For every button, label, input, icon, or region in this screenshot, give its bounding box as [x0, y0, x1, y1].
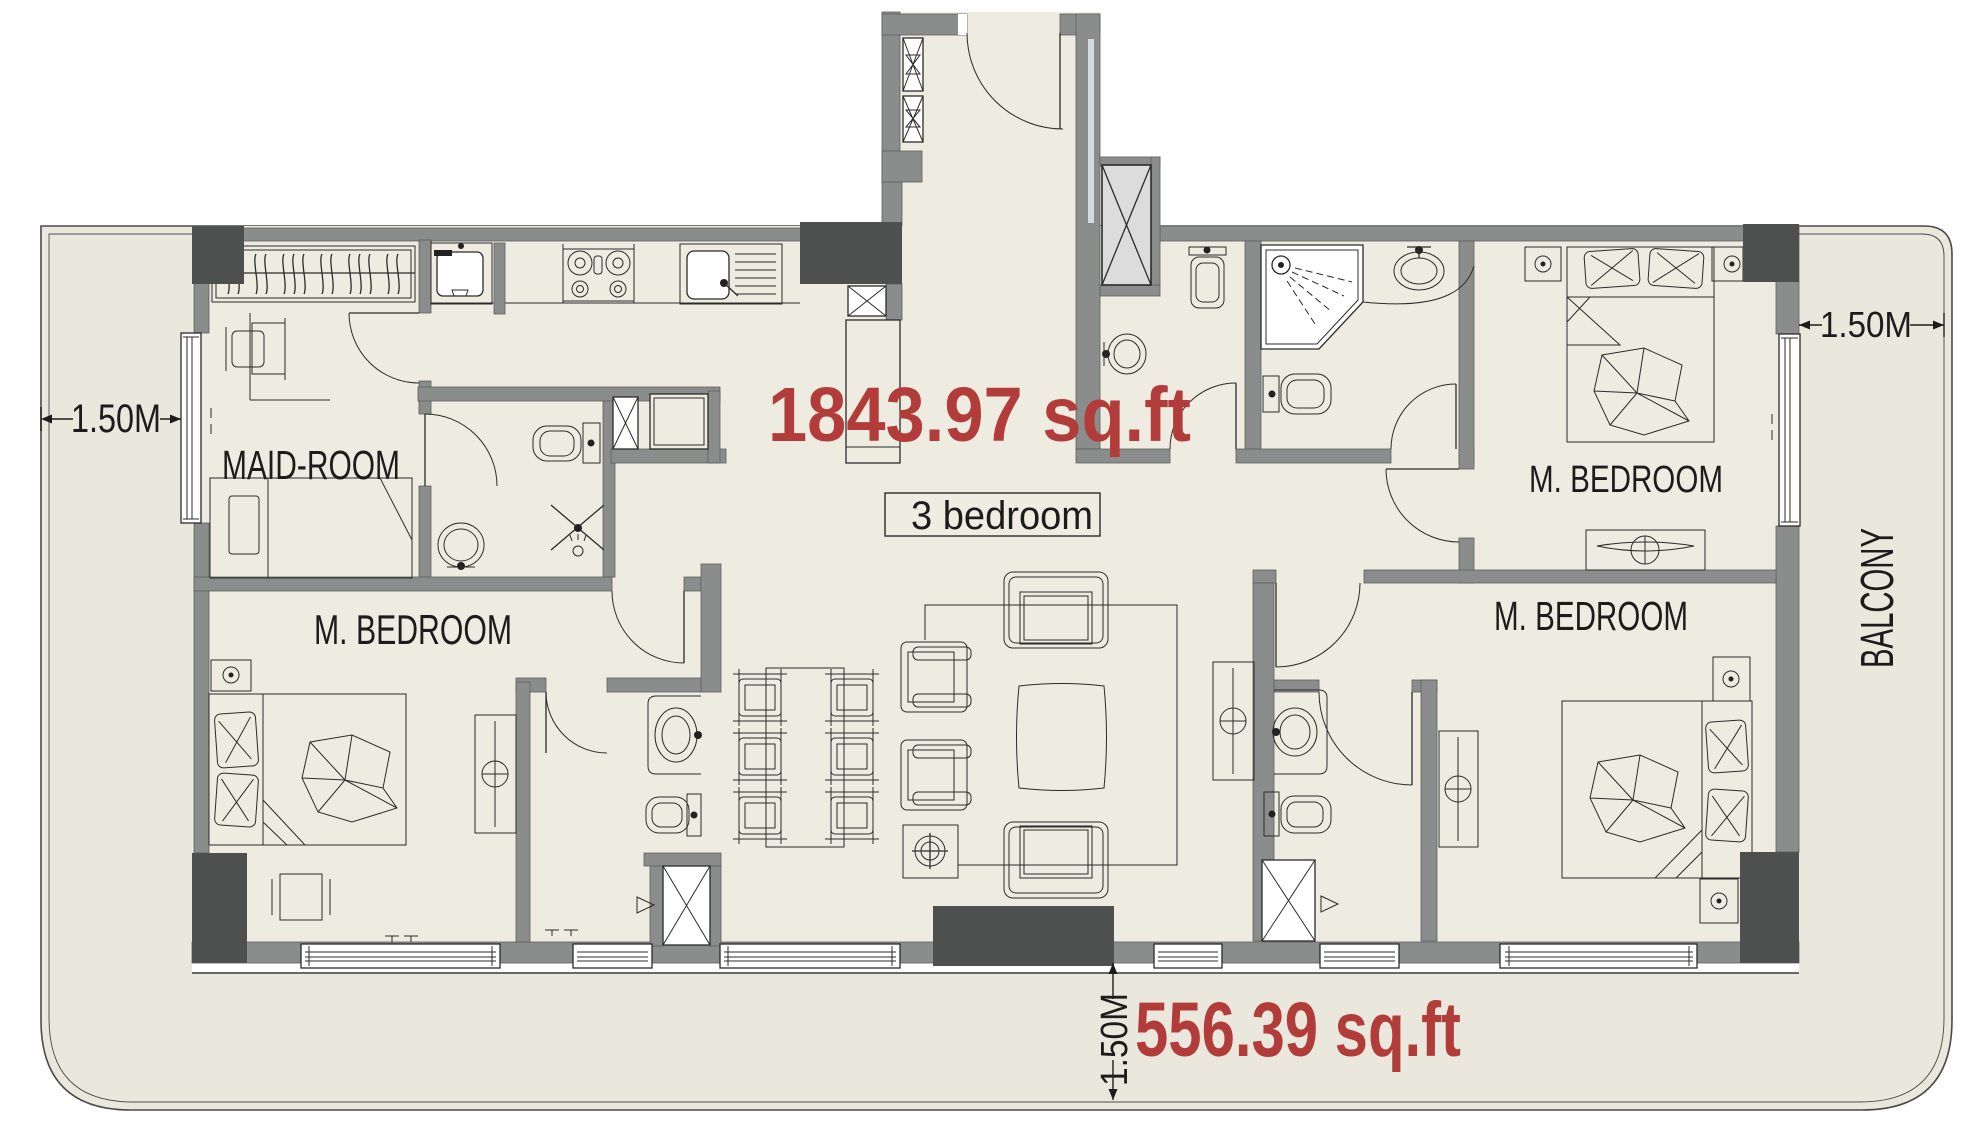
- svg-text:1.50M: 1.50M: [71, 397, 161, 441]
- svg-text:BALCONY: BALCONY: [1851, 528, 1903, 668]
- svg-text:1843.97 sq.ft: 1843.97 sq.ft: [768, 372, 1191, 458]
- svg-text:M. BEDROOM: M. BEDROOM: [1494, 593, 1688, 639]
- svg-text:1.50M: 1.50M: [1820, 304, 1912, 345]
- svg-text:M. BEDROOM: M. BEDROOM: [1529, 459, 1723, 501]
- svg-text:MAID-ROOM: MAID-ROOM: [222, 442, 400, 488]
- svg-text:M. BEDROOM: M. BEDROOM: [314, 606, 512, 653]
- svg-text:1.50M: 1.50M: [1094, 993, 1136, 1086]
- svg-text:556.39 sq.ft: 556.39 sq.ft: [1135, 987, 1461, 1073]
- svg-text:3 bedroom: 3 bedroom: [911, 494, 1093, 538]
